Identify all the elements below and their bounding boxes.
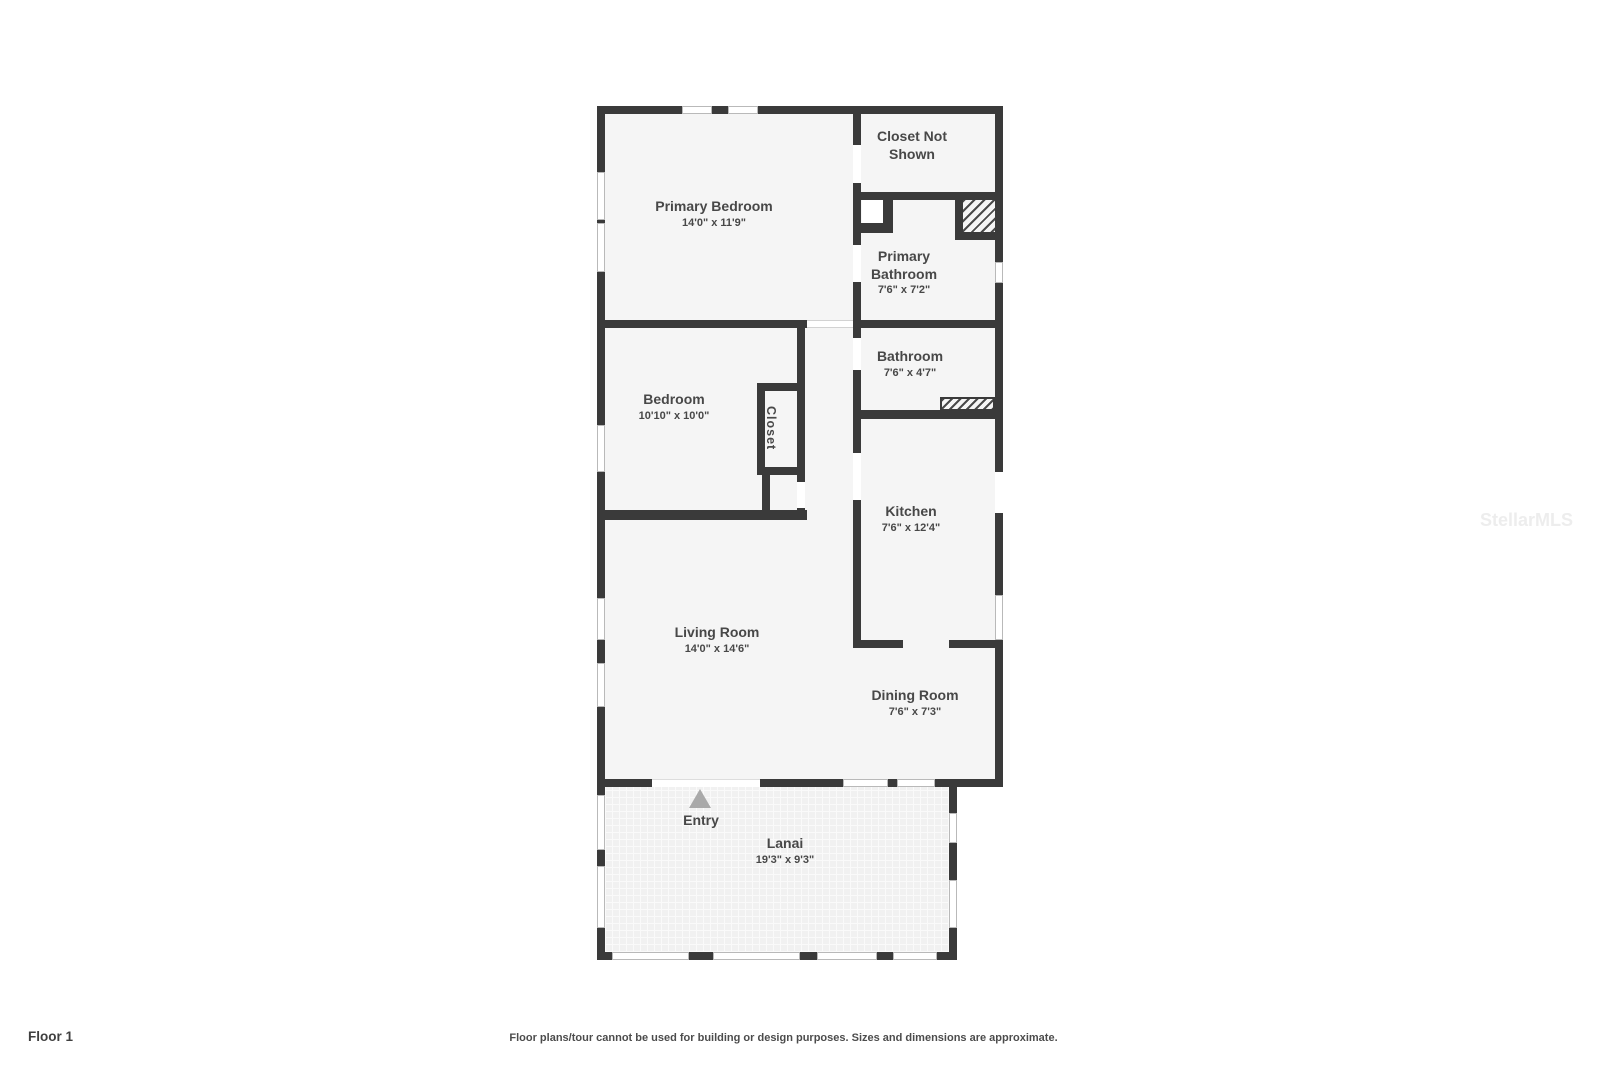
room-label-bathroom: Bathroom 7'6" x 4'7" [877,348,943,381]
window [597,866,605,928]
room-label-closet: Closet [754,390,778,466]
wall-bathroom-left [853,328,861,338]
room-label-closet-not-shown: Closet Not Shown [857,128,967,163]
room-dims: 7'6" x 12'4" [882,521,940,536]
room-dims: 19'3" x 9'3" [756,853,814,868]
wall-living-top [597,510,807,520]
room-label-lanai: Lanai 19'3" x 9'3" [756,835,814,868]
room-label-primary-bathroom: Primary Bathroom 7'6" x 7'2" [864,248,944,298]
wall-outer-right [995,106,1003,787]
wall-outer-top [597,106,1003,114]
room-label-kitchen: Kitchen 7'6" x 12'4" [882,503,940,536]
window [893,952,937,960]
room-dims: 14'0" x 11'9" [655,216,772,231]
lanai-tile-floor [605,787,949,952]
window [949,813,957,843]
floorplan-canvas: Primary Bedroom 14'0" x 11'9" Closet Not… [0,0,1600,1066]
wall-bathroom-left [853,370,861,453]
room-name: Primary Bathroom [864,248,944,283]
room-dims: 7'6" x 4'7" [877,366,943,381]
door-hall-closet [797,482,805,508]
room-dims: 7'6" x 7'2" [864,283,944,298]
opening-hallway [807,320,853,328]
window [995,595,1003,640]
window [597,223,605,272]
room-label-living-room: Living Room 14'0" x 14'6" [675,624,760,657]
window [713,952,800,960]
wall-bathroom-top [853,320,1003,328]
room-name: Bathroom [877,348,943,366]
room-name: Living Room [675,624,760,642]
wall-bathroom-bottom [861,410,1003,419]
room-name: Lanai [756,835,814,853]
mls-watermark: StellarMLS [1480,510,1573,531]
floorplan: Primary Bedroom 14'0" x 11'9" Closet Not… [597,106,1003,960]
room-label-bedroom: Bedroom 10'10" x 10'0" [639,391,710,424]
window [995,262,1003,283]
window [843,779,888,787]
tub-hatch [940,397,995,411]
window [897,779,935,787]
room-label-primary-bedroom: Primary Bedroom 14'0" x 11'9" [655,198,772,231]
window [597,425,605,472]
door-primary-bathroom [853,245,861,282]
wall-bedroom-top [605,320,807,328]
room-label-entry: Entry [683,812,719,830]
window [949,880,957,928]
opening-entry [652,779,760,787]
room-name: Closet Not Shown [857,128,967,163]
window [817,952,877,960]
wall-shower-bottom [955,232,1003,240]
wall-bath-nook-h [854,223,893,233]
wall-kitchen-left [853,500,861,648]
room-name: Entry [683,812,719,830]
window [597,598,605,640]
room-dims: 14'0" x 14'6" [675,642,760,657]
door-bathroom [853,338,861,370]
shower-hatch [963,200,995,232]
room-name: Dining Room [871,687,958,705]
window [728,106,758,114]
room-dims: 7'6" x 7'3" [871,705,958,720]
wall-bedroom-right [797,328,805,482]
room-dims: 10'10" x 10'0" [639,409,710,424]
room-name: Primary Bedroom [655,198,772,216]
window [682,106,712,114]
disclaimer-text: Floor plans/tour cannot be used for buil… [0,1032,1567,1044]
window [597,795,605,850]
wall-kitchen-bottom [949,640,1003,648]
room-name: Kitchen [882,503,940,521]
wall-kitchen-bottom [853,640,903,648]
window [597,172,605,220]
window [612,952,689,960]
room-name: Bedroom [639,391,710,409]
room-label-dining-room: Dining Room 7'6" x 7'3" [871,687,958,720]
opening-kitchen-right [995,472,1003,513]
wall-closet-bottom2 [757,467,805,475]
wall-closet-bottom [853,192,1003,200]
door-landing [862,200,883,223]
entry-arrow-icon [689,789,711,808]
door-kitchen [853,453,861,500]
window [597,663,605,707]
